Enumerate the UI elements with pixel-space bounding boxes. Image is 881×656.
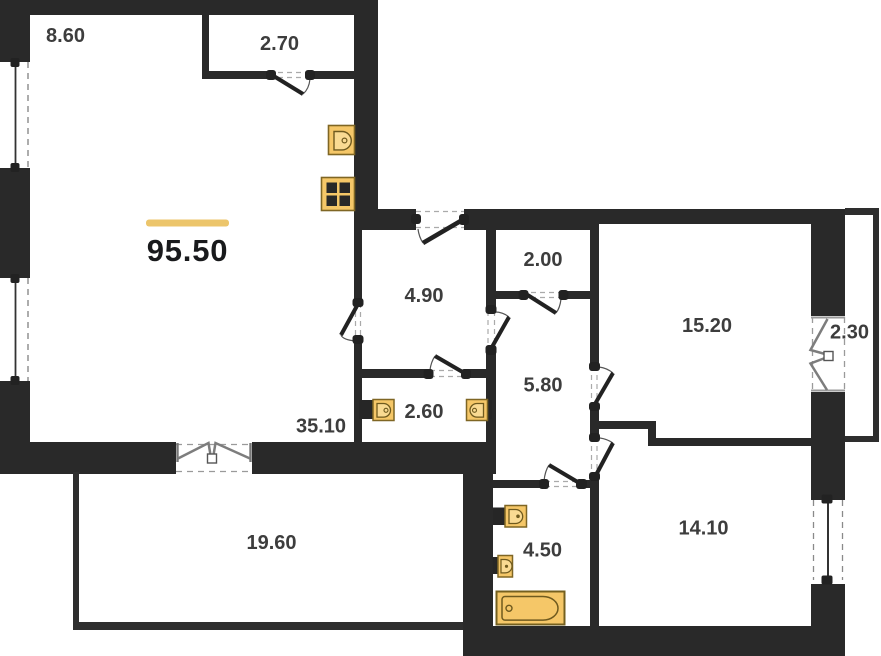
svg-text:2.30: 2.30 — [830, 322, 869, 344]
svg-text:15.20: 15.20 — [682, 315, 732, 337]
svg-text:19.60: 19.60 — [246, 532, 296, 554]
svg-text:5.80: 5.80 — [524, 375, 563, 397]
svg-text:2.00: 2.00 — [524, 249, 563, 271]
svg-text:2.70: 2.70 — [260, 33, 299, 55]
svg-text:2.60: 2.60 — [405, 401, 444, 423]
svg-text:35.10: 35.10 — [296, 416, 346, 438]
svg-text:14.10: 14.10 — [678, 518, 728, 540]
svg-text:4.90: 4.90 — [405, 285, 444, 307]
svg-text:4.50: 4.50 — [523, 540, 562, 562]
svg-text:8.60: 8.60 — [46, 25, 85, 47]
svg-text:95.50: 95.50 — [147, 233, 229, 268]
